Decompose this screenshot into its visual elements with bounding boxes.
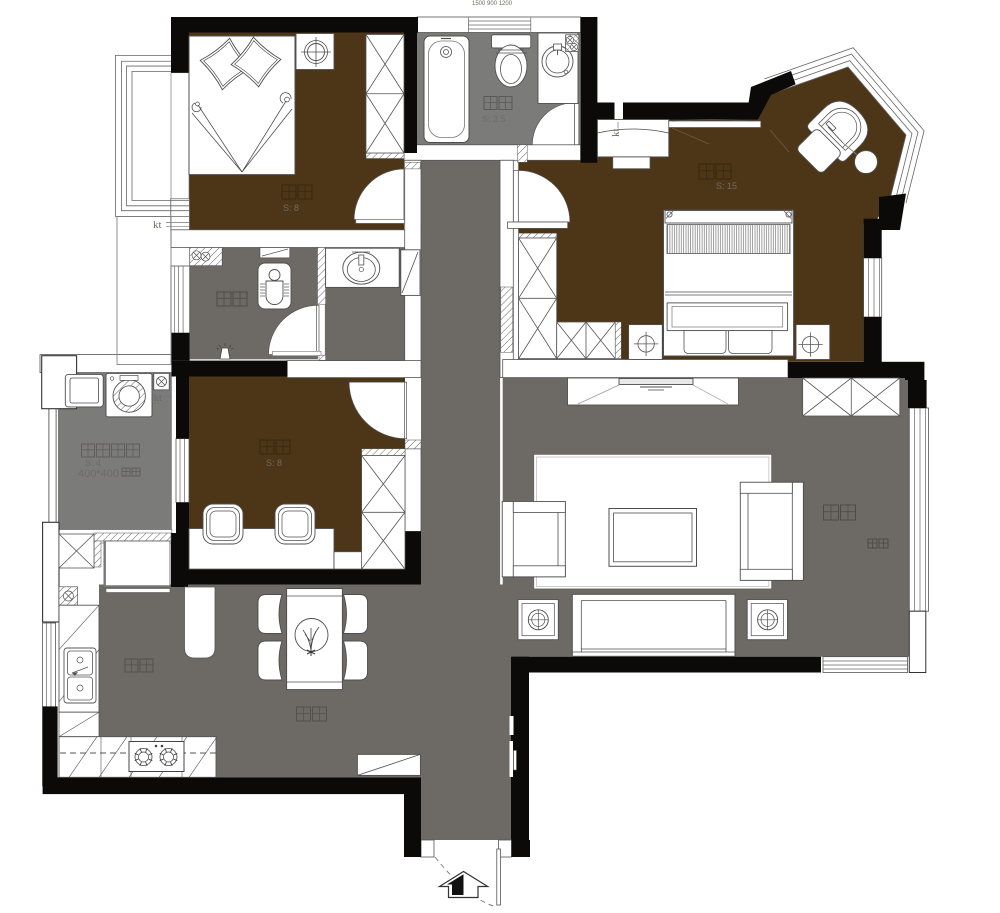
svg-text:S: 8: S: 8 xyxy=(266,458,282,468)
svg-text:S: 8: S: 8 xyxy=(283,203,299,213)
svg-text:S: 15: S: 15 xyxy=(716,181,737,191)
svg-text:S: 4.5: S: 4.5 xyxy=(219,310,248,322)
svg-text:800*800: 800*800 xyxy=(812,536,860,551)
svg-text:kt: kt xyxy=(153,219,162,231)
svg-text:S: 3.5: S: 3.5 xyxy=(482,114,506,124)
svg-text:kt: kt xyxy=(610,128,622,137)
svg-text:S: 4: S: 4 xyxy=(85,458,101,468)
svg-text:1500 900 1200: 1500 900 1200 xyxy=(472,1,513,7)
svg-text:kt: kt xyxy=(154,392,163,404)
svg-text:400*400: 400*400 xyxy=(78,468,119,480)
svg-text:S: 35: S: 35 xyxy=(828,523,849,533)
